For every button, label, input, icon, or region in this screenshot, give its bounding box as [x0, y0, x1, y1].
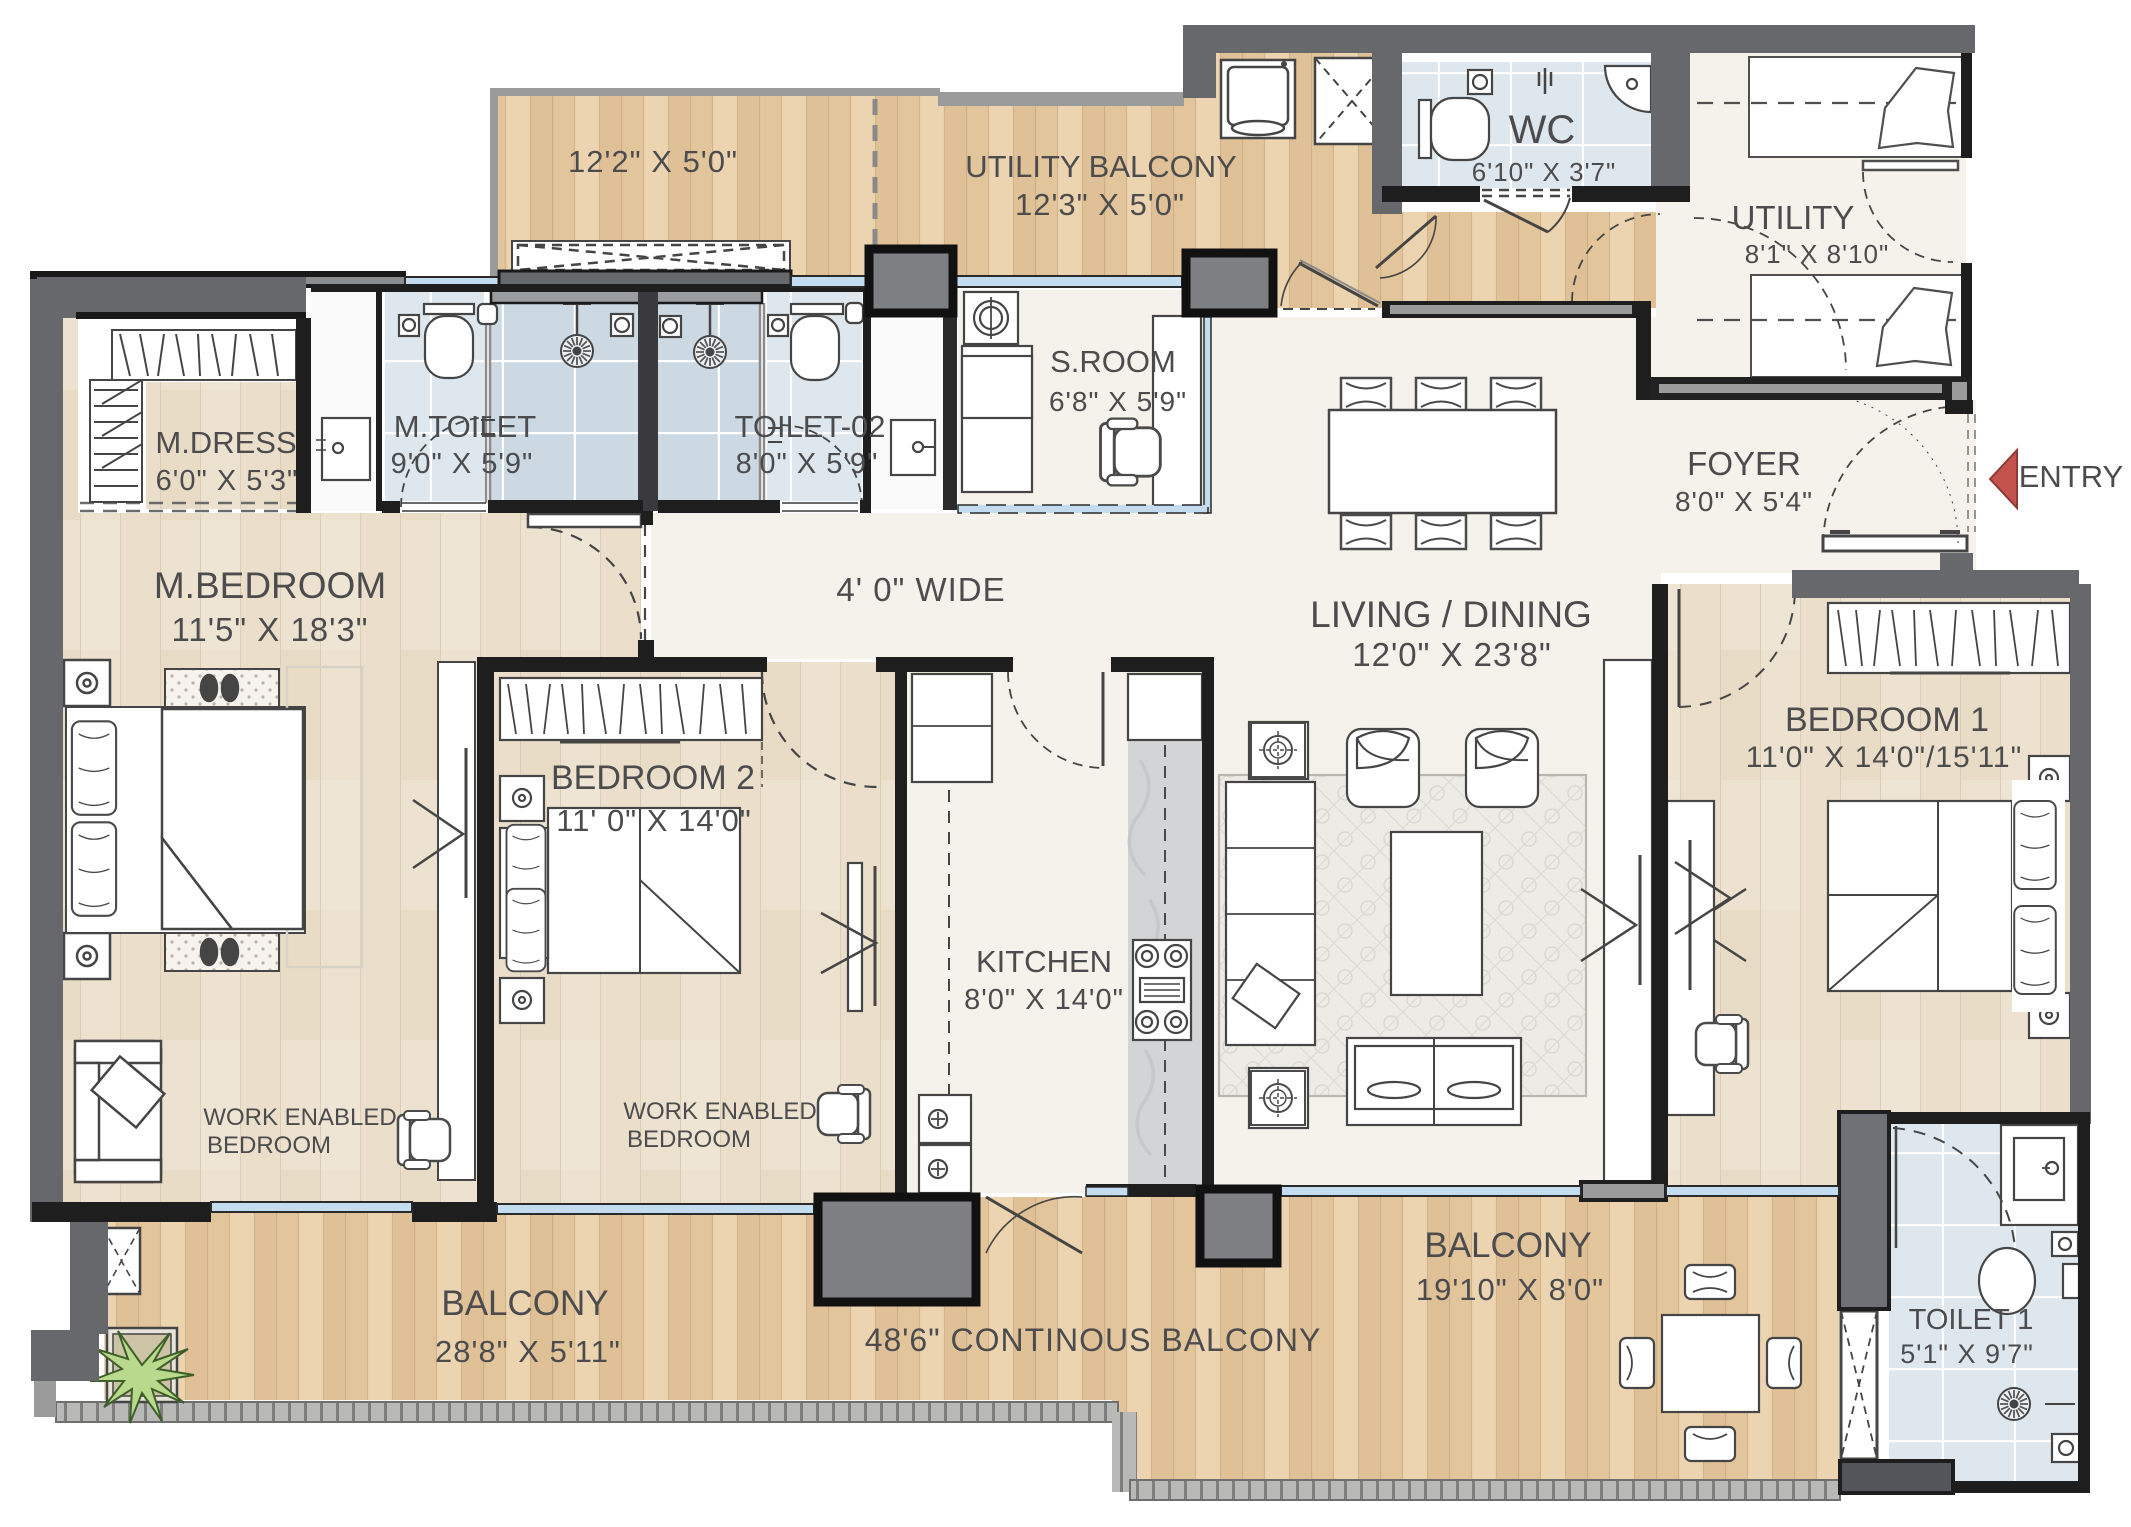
svg-text:11'5" X 18'3": 11'5" X 18'3" — [171, 611, 368, 648]
svg-text:11' 0" X 14'0": 11' 0" X 14'0" — [556, 803, 752, 838]
svg-text:LIVING / DINING: LIVING / DINING — [1310, 594, 1592, 635]
svg-text:TOILET-02: TOILET-02 — [734, 409, 885, 444]
svg-text:BEDROOM: BEDROOM — [207, 1132, 331, 1159]
svg-text:9'0" X 5'9": 9'0" X 5'9" — [391, 448, 534, 480]
svg-text:UTILITY BALCONY: UTILITY BALCONY — [965, 149, 1237, 184]
svg-text:BEDROOM 1: BEDROOM 1 — [1785, 701, 1989, 739]
svg-text:BALCONY: BALCONY — [441, 1284, 608, 1323]
svg-text:28'8" X 5'11": 28'8" X 5'11" — [435, 1334, 621, 1369]
svg-text:12'3" X 5'0": 12'3" X 5'0" — [1015, 187, 1185, 222]
svg-text:FOYER: FOYER — [1687, 445, 1801, 482]
svg-text:6'8" X 5'9": 6'8" X 5'9" — [1049, 386, 1187, 417]
svg-text:4' 0" WIDE: 4' 0" WIDE — [836, 571, 1005, 608]
svg-text:5'1" X 9'7": 5'1" X 9'7" — [1900, 1339, 2034, 1369]
svg-text:M.BEDROOM: M.BEDROOM — [154, 565, 386, 606]
svg-text:8'0" X 14'0": 8'0" X 14'0" — [964, 984, 1124, 1016]
svg-text:12'0" X 23'8": 12'0" X 23'8" — [1352, 636, 1552, 673]
svg-text:M.TOILET: M.TOILET — [394, 409, 536, 444]
svg-text:UTILITY: UTILITY — [1732, 199, 1855, 236]
svg-text:M.DRESS: M.DRESS — [155, 425, 296, 460]
svg-text:WORK ENABLED: WORK ENABLED — [623, 1098, 816, 1125]
svg-text:BEDROOM 2: BEDROOM 2 — [551, 759, 755, 797]
svg-text:8'1" X 8'10": 8'1" X 8'10" — [1745, 239, 1889, 269]
svg-text:8'0" X 5'9": 8'0" X 5'9" — [736, 448, 879, 480]
svg-text:12'2" X 5'0": 12'2" X 5'0" — [568, 144, 738, 179]
svg-text:KITCHEN: KITCHEN — [976, 944, 1112, 979]
svg-text:ENTRY: ENTRY — [2019, 459, 2124, 494]
svg-text:S.ROOM: S.ROOM — [1050, 344, 1176, 379]
svg-text:6'0" X 5'3": 6'0" X 5'3" — [156, 465, 299, 497]
svg-text:BEDROOM: BEDROOM — [627, 1126, 751, 1153]
svg-text:48'6" CONTINOUS BALCONY: 48'6" CONTINOUS BALCONY — [865, 1322, 1322, 1358]
svg-text:WORK ENABLED: WORK ENABLED — [203, 1104, 396, 1131]
svg-text:BALCONY: BALCONY — [1424, 1226, 1591, 1265]
svg-text:WC: WC — [1509, 108, 1576, 152]
svg-text:8'0" X 5'4": 8'0" X 5'4" — [1675, 486, 1813, 517]
svg-text:TOILET 1: TOILET 1 — [1909, 1304, 2034, 1336]
svg-text:11'0" X 14'0"/15'11": 11'0" X 14'0"/15'11" — [1746, 741, 2023, 774]
svg-text:6'10" X 3'7": 6'10" X 3'7" — [1472, 157, 1616, 187]
svg-text:19'10" X 8'0": 19'10" X 8'0" — [1416, 1272, 1604, 1307]
